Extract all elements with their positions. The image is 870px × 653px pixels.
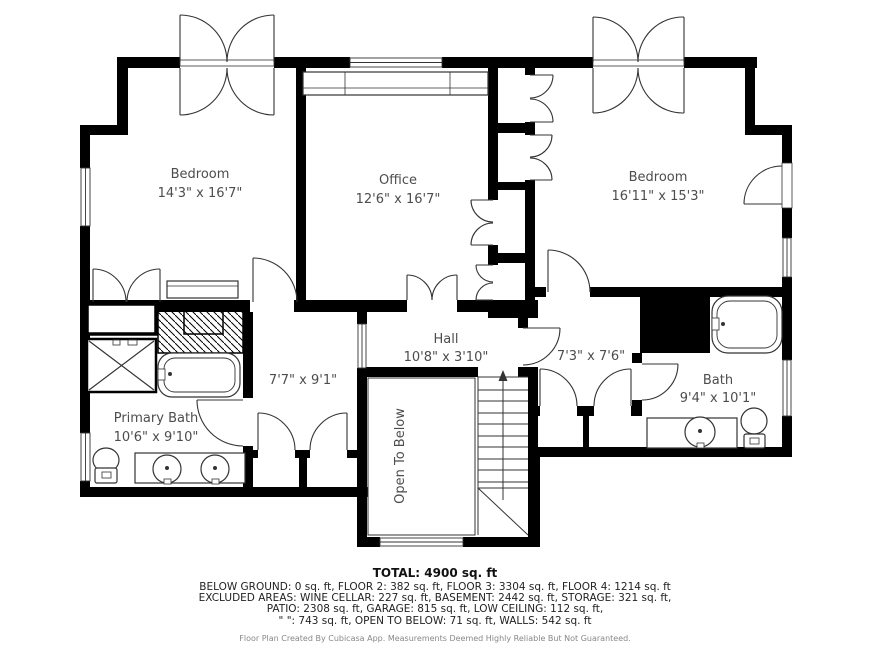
room-label: Bedroom — [171, 167, 230, 182]
window-icon — [358, 324, 366, 368]
door-icon — [258, 413, 295, 450]
door-icon — [594, 369, 631, 406]
shower-icon — [87, 339, 156, 392]
builtin-wardrobe-icon — [303, 72, 488, 95]
door-icon — [744, 163, 792, 208]
room-dims: 10'6" x 9'10" — [114, 430, 199, 445]
french-door-icon — [593, 17, 684, 113]
window-icon — [350, 58, 442, 67]
bifold-door-icon — [530, 75, 553, 122]
excluded-area-text-2: PATIO: 2308 sq. ft, GARAGE: 815 sq. ft, … — [0, 604, 870, 615]
bathtub-icon — [158, 353, 240, 397]
door-icon — [197, 400, 243, 446]
open-to-below-label: Open To Below — [393, 408, 408, 504]
door-icon — [642, 364, 678, 400]
door-icon — [310, 413, 347, 450]
room-dims: 14'3" x 16'7" — [158, 186, 243, 201]
stairs — [368, 370, 528, 535]
area-summary: TOTAL: 4900 sq. ft BELOW GROUND: 0 sq. f… — [0, 566, 870, 627]
room-dims: 12'6" x 16'7" — [356, 192, 441, 207]
bifold-door-icon — [93, 269, 160, 302]
room-dims: 9'4" x 10'1" — [680, 391, 756, 406]
vanity-counter — [647, 417, 737, 448]
double-door-icon — [407, 275, 457, 300]
door-icon — [523, 328, 560, 365]
room-label: Primary Bath — [114, 411, 199, 426]
room-label: Office — [379, 173, 417, 188]
bathtub-icon — [712, 296, 782, 353]
toilet-icon — [93, 448, 119, 483]
door-icon — [548, 250, 590, 292]
room-dims: 10'8" x 3'10" — [404, 350, 489, 365]
stair-direction-arrow-icon — [499, 370, 508, 381]
room-label: Hall — [434, 332, 459, 347]
sink-icon — [201, 455, 229, 484]
low-ceiling-hatch-area — [158, 302, 243, 353]
floor-plan-canvas: Bedroom 14'3" x 16'7" Office 12'6" x 16'… — [0, 0, 870, 653]
french-door-icon — [180, 15, 274, 115]
excluded-area-text-3: " ": 743 sq. ft, OPEN TO BELOW: 71 sq. f… — [0, 616, 870, 627]
window-icon — [81, 168, 90, 226]
room-label: Bedroom — [629, 170, 688, 185]
disclaimer-text: Floor Plan Created By Cubicasa App. Meas… — [0, 634, 870, 643]
room-dims: 7'3" x 7'6" — [557, 349, 625, 364]
room-label: Bath — [703, 373, 733, 388]
sink-icon — [153, 455, 181, 484]
void-block — [640, 287, 710, 353]
closet-door-icon — [476, 265, 493, 300]
vanity-counter — [135, 453, 245, 484]
open-to-below-outline — [368, 378, 475, 535]
sink-icon — [685, 417, 715, 448]
floor-plan-drawing: Bedroom 14'3" x 16'7" Office 12'6" x 16'… — [0, 0, 870, 560]
door-icon — [540, 369, 577, 406]
window-icon — [81, 433, 90, 481]
door-icon — [253, 258, 297, 302]
closet-door-icon — [471, 200, 493, 245]
dresser-icon — [167, 281, 238, 298]
window-icon — [380, 538, 463, 546]
closet-box — [87, 304, 156, 334]
room-dims: 7'7" x 9'1" — [269, 373, 337, 388]
window-icon — [783, 238, 791, 277]
toilet-icon — [741, 408, 767, 448]
bifold-door-icon — [530, 135, 552, 180]
window-icon — [783, 360, 791, 416]
room-dims: 16'11" x 15'3" — [612, 189, 705, 204]
total-area-text: TOTAL: 4900 sq. ft — [0, 566, 870, 580]
